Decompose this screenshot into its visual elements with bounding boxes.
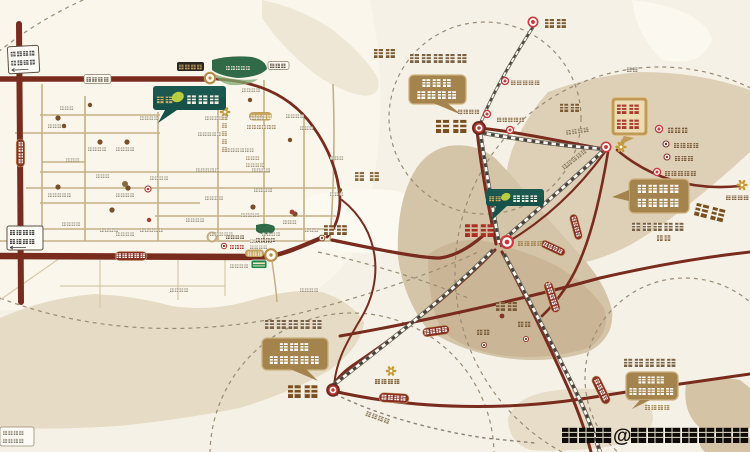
svg-text:@: @	[613, 426, 632, 447]
